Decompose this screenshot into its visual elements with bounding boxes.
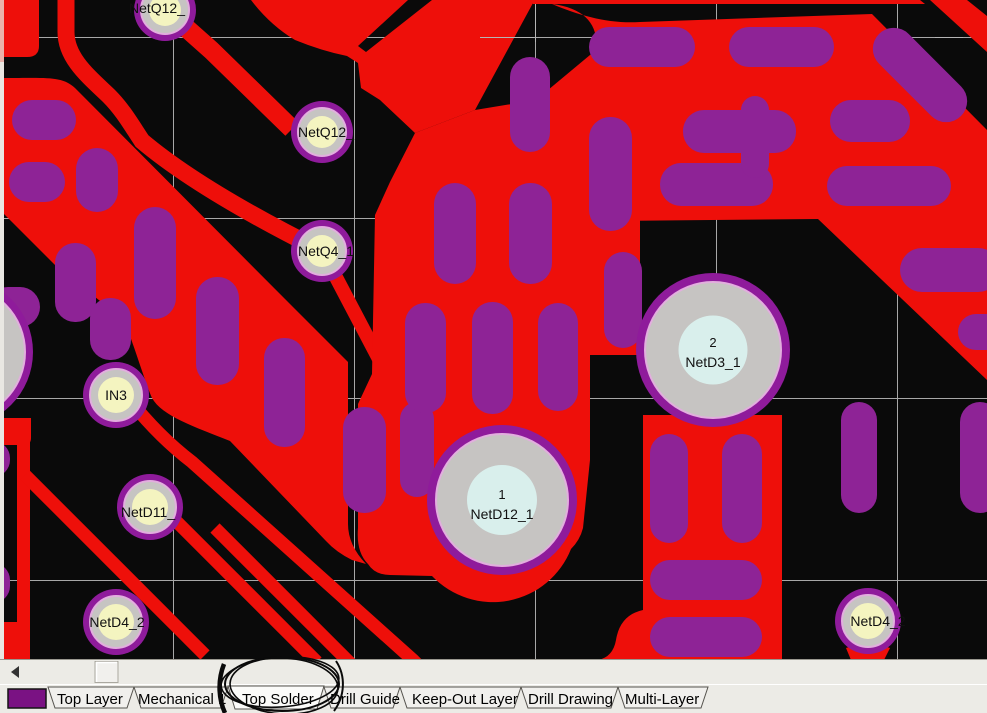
svg-text:NetQ12_: NetQ12_ [298, 124, 354, 140]
svg-text:Multi-Layer: Multi-Layer [625, 691, 699, 708]
svg-text:NetD4_2: NetD4_2 [89, 614, 144, 630]
svg-text:NetD4_2: NetD4_2 [850, 613, 905, 629]
svg-text:NetQ12_: NetQ12_ [129, 0, 185, 16]
svg-text:IN3: IN3 [105, 387, 127, 403]
svg-text:Mechanical 1: Mechanical 1 [138, 691, 226, 708]
svg-text:NetD3_1: NetD3_1 [685, 354, 740, 370]
svg-text:NetQ4_1: NetQ4_1 [298, 243, 354, 259]
svg-text:NetD11_: NetD11_ [121, 504, 175, 520]
svg-text:Drill Drawing: Drill Drawing [528, 691, 613, 708]
svg-text:2: 2 [709, 335, 716, 350]
svg-text:Keep-Out Layer: Keep-Out Layer [412, 691, 518, 708]
svg-text:Top Layer: Top Layer [57, 691, 123, 708]
svg-text:1: 1 [498, 487, 505, 502]
svg-text:NetD12_1: NetD12_1 [470, 506, 533, 522]
